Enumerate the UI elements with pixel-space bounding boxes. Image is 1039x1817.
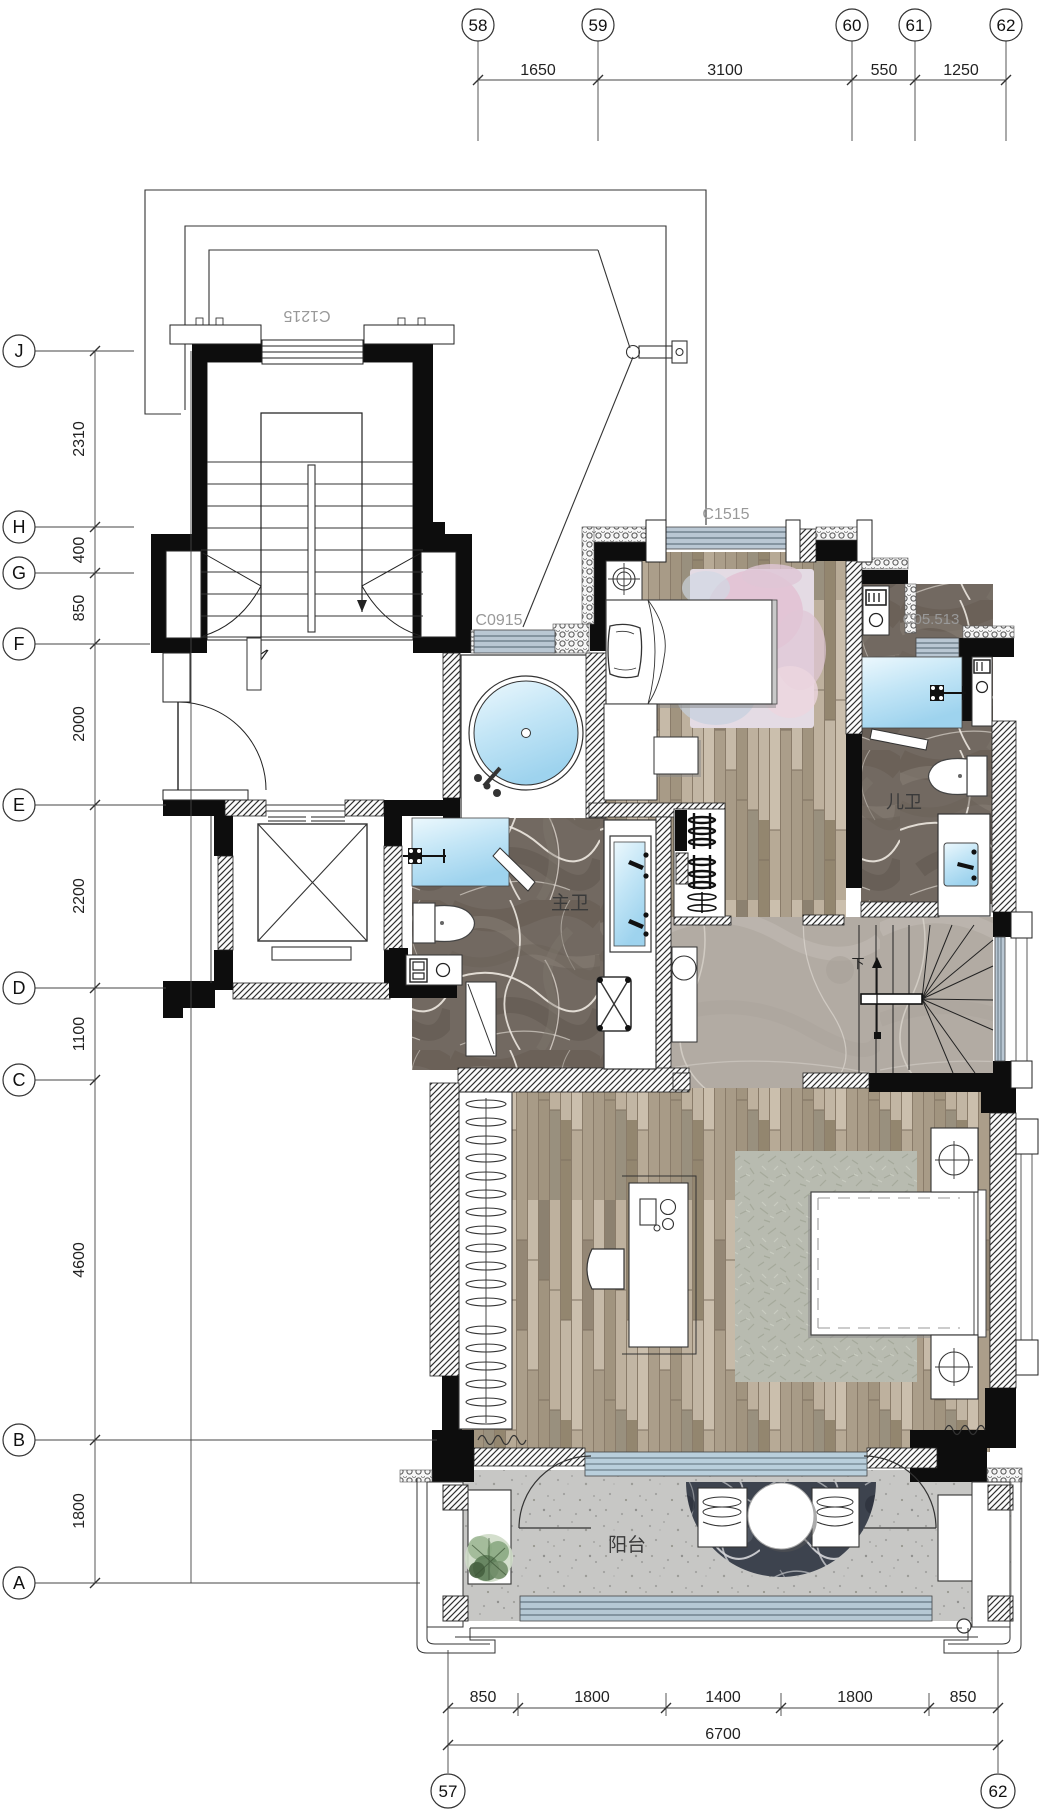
svg-text:A: A xyxy=(13,1573,25,1593)
svg-text:1100: 1100 xyxy=(71,1017,88,1052)
svg-text:儿卫: 儿卫 xyxy=(886,792,922,812)
svg-text:J: J xyxy=(15,341,24,361)
svg-text:850: 850 xyxy=(71,595,88,622)
svg-text:C05.513: C05.513 xyxy=(903,611,960,628)
svg-text:C: C xyxy=(13,1070,26,1090)
svg-text:下: 下 xyxy=(851,956,864,971)
svg-text:1800: 1800 xyxy=(574,1689,610,1706)
svg-text:2200: 2200 xyxy=(71,878,88,914)
svg-text:850: 850 xyxy=(470,1689,497,1706)
svg-text:C0915: C0915 xyxy=(475,612,522,629)
svg-text:2000: 2000 xyxy=(71,706,88,742)
svg-text:850: 850 xyxy=(950,1689,977,1706)
svg-text:62: 62 xyxy=(989,1782,1008,1801)
svg-text:1650: 1650 xyxy=(520,62,556,79)
svg-text:D: D xyxy=(13,978,26,998)
svg-text:400: 400 xyxy=(71,537,88,564)
svg-text:59: 59 xyxy=(589,16,608,35)
svg-text:4600: 4600 xyxy=(71,1242,88,1278)
svg-text:1400: 1400 xyxy=(705,1689,741,1706)
svg-text:550: 550 xyxy=(871,62,898,79)
svg-text:主卫: 主卫 xyxy=(551,892,589,914)
svg-text:阳台: 阳台 xyxy=(608,1534,646,1556)
svg-text:E: E xyxy=(13,795,25,815)
svg-text:C1515: C1515 xyxy=(702,506,749,523)
svg-text:2310: 2310 xyxy=(71,421,88,457)
svg-text:6700: 6700 xyxy=(705,1726,741,1743)
svg-text:60: 60 xyxy=(843,16,862,35)
svg-text:58: 58 xyxy=(469,16,488,35)
svg-text:1250: 1250 xyxy=(943,62,979,79)
svg-text:B: B xyxy=(13,1430,25,1450)
svg-text:H: H xyxy=(13,517,26,537)
svg-text:1800: 1800 xyxy=(71,1493,88,1529)
svg-text:C1215: C1215 xyxy=(283,307,330,324)
svg-text:3100: 3100 xyxy=(707,62,743,79)
svg-text:F: F xyxy=(14,634,25,654)
svg-text:62: 62 xyxy=(997,16,1016,35)
svg-text:G: G xyxy=(12,563,26,583)
svg-text:57: 57 xyxy=(439,1782,458,1801)
svg-text:61: 61 xyxy=(906,16,925,35)
svg-text:1800: 1800 xyxy=(837,1689,873,1706)
